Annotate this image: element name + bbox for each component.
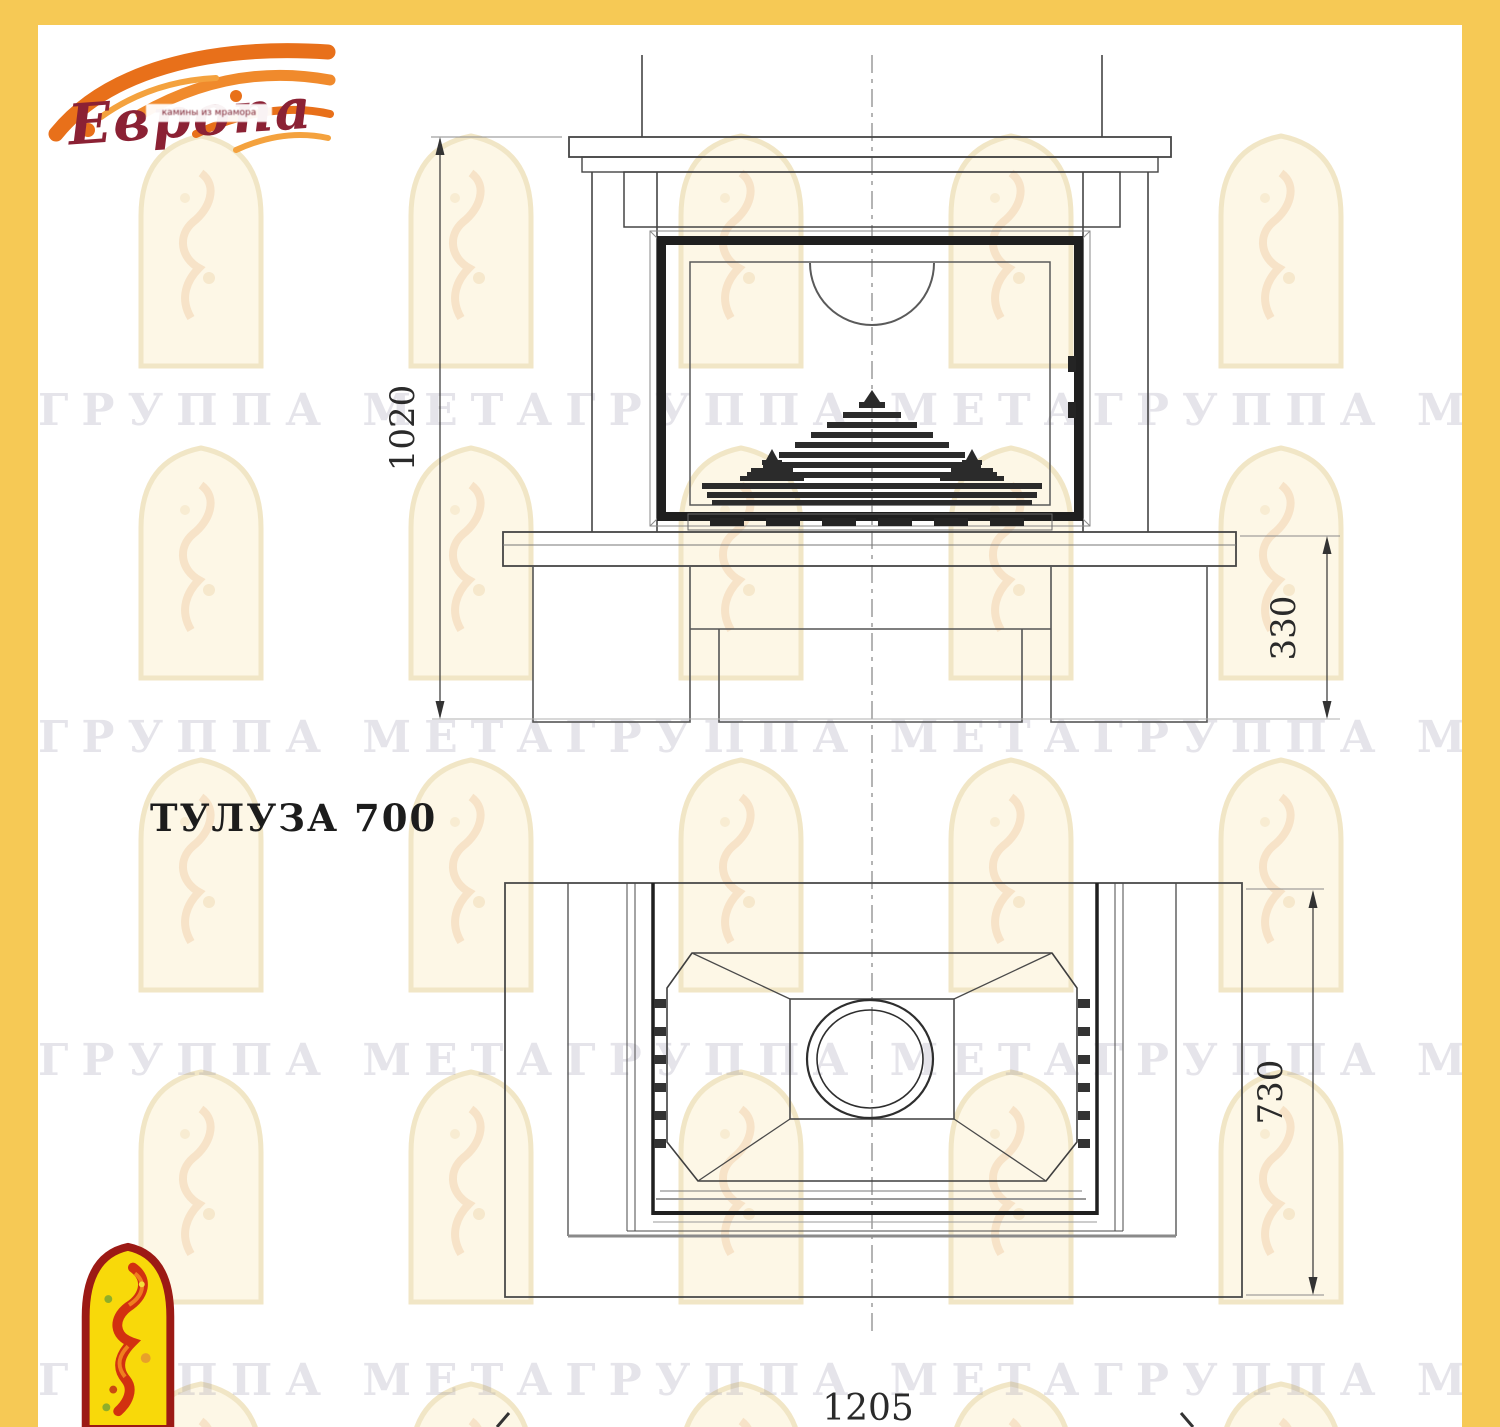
brand-logo: Европа камины из мрамора xyxy=(38,22,338,192)
technical-drawing: 1020 330 xyxy=(0,0,1500,1427)
flue-pipe-outer-ring xyxy=(807,1000,933,1118)
front-view-drawing xyxy=(432,55,1340,722)
base-plinth xyxy=(533,566,1207,722)
frame-border-right xyxy=(1462,0,1500,1427)
hearth-bench xyxy=(503,532,1236,566)
firebox-glass xyxy=(690,262,1050,505)
meta-arch-logo xyxy=(78,1240,178,1427)
firebox-outer-trim xyxy=(650,231,1090,526)
spec-sheet-page: ГРУППА МЕТАГРУППА МЕТАГРУППА МЕТА ГРУППА… xyxy=(0,0,1500,1427)
dimension-base-330: 330 xyxy=(1240,536,1340,719)
corner-miter-lines xyxy=(650,231,1090,526)
dim-label-730: 730 xyxy=(1251,1060,1291,1125)
fire-grate-pyramid xyxy=(702,390,1042,505)
dim-label-1020: 1020 xyxy=(383,385,423,472)
mantel-shelf xyxy=(569,137,1171,157)
frame-border-left xyxy=(0,0,38,1427)
page-title: ТУЛУЗА 700 xyxy=(150,796,437,840)
flue-pipe-inner-ring xyxy=(817,1010,923,1108)
dimension-depth-730: 730 xyxy=(1246,889,1324,1295)
plan-view-drawing xyxy=(505,883,1242,1297)
dim-label-330: 330 xyxy=(1264,596,1304,661)
dim-label-1205: 1205 xyxy=(822,1388,914,1427)
dimension-width-1205: 1205 xyxy=(497,1388,1193,1427)
mantel-shelf-lip xyxy=(582,157,1158,172)
brand-tagline: камины из мрамора xyxy=(146,104,272,122)
dimension-height-1020: 1020 xyxy=(383,137,562,719)
plan-firebox-walls xyxy=(653,883,1097,1215)
frame-border-top xyxy=(0,0,1500,25)
